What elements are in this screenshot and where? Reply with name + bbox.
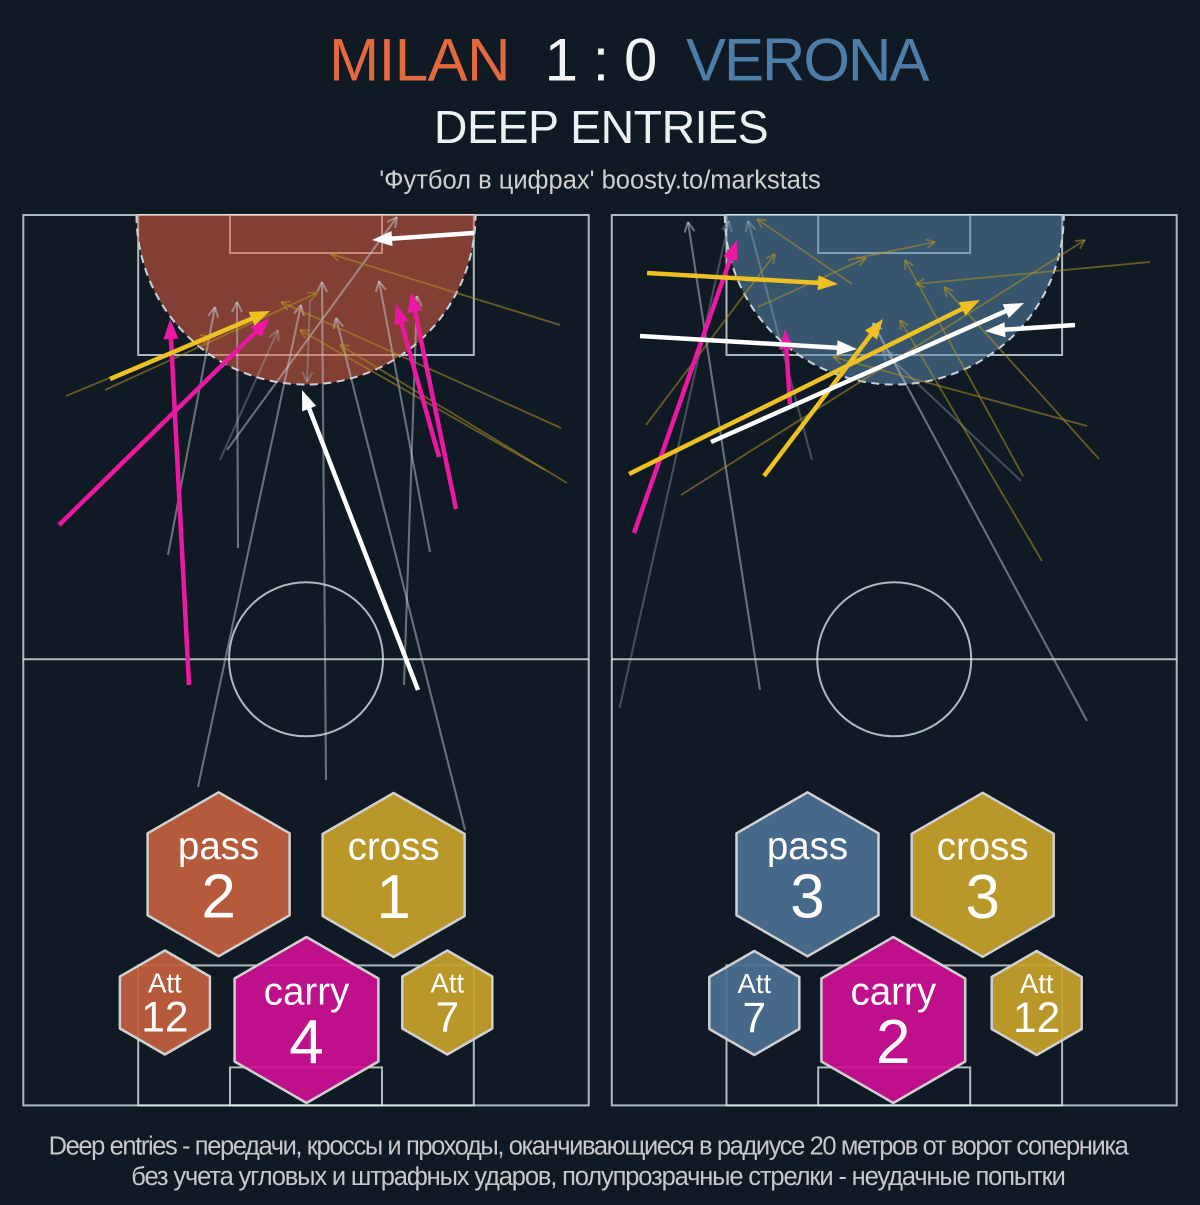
svg-text:VERONA: VERONA <box>686 27 929 94</box>
svg-text:7: 7 <box>435 995 459 1042</box>
svg-text:4: 4 <box>289 1008 323 1077</box>
svg-text:2: 2 <box>201 862 235 931</box>
svg-text:3: 3 <box>790 862 824 931</box>
svg-text:3: 3 <box>965 863 999 932</box>
svg-text:MILAN: MILAN <box>329 27 510 94</box>
svg-text:Deep entries - передачи, кросс: Deep entries - передачи, кроссы и проход… <box>49 1133 1130 1161</box>
svg-text:12: 12 <box>141 995 188 1042</box>
svg-text:1: 1 <box>376 863 410 932</box>
svg-text:12: 12 <box>1013 995 1060 1042</box>
svg-text:7: 7 <box>742 995 766 1042</box>
svg-text:без учета угловых и штрафных у: без учета угловых и штрафных ударов, пол… <box>131 1163 1064 1191</box>
svg-text:'Футбол в цифрах' boosty.to/ma: 'Футбол в цифрах' boosty.to/markstats <box>379 167 821 195</box>
svg-text:DEEP ENTRIES: DEEP ENTRIES <box>434 101 768 153</box>
svg-text:1 : 0: 1 : 0 <box>545 27 657 94</box>
svg-text:2: 2 <box>876 1008 910 1077</box>
